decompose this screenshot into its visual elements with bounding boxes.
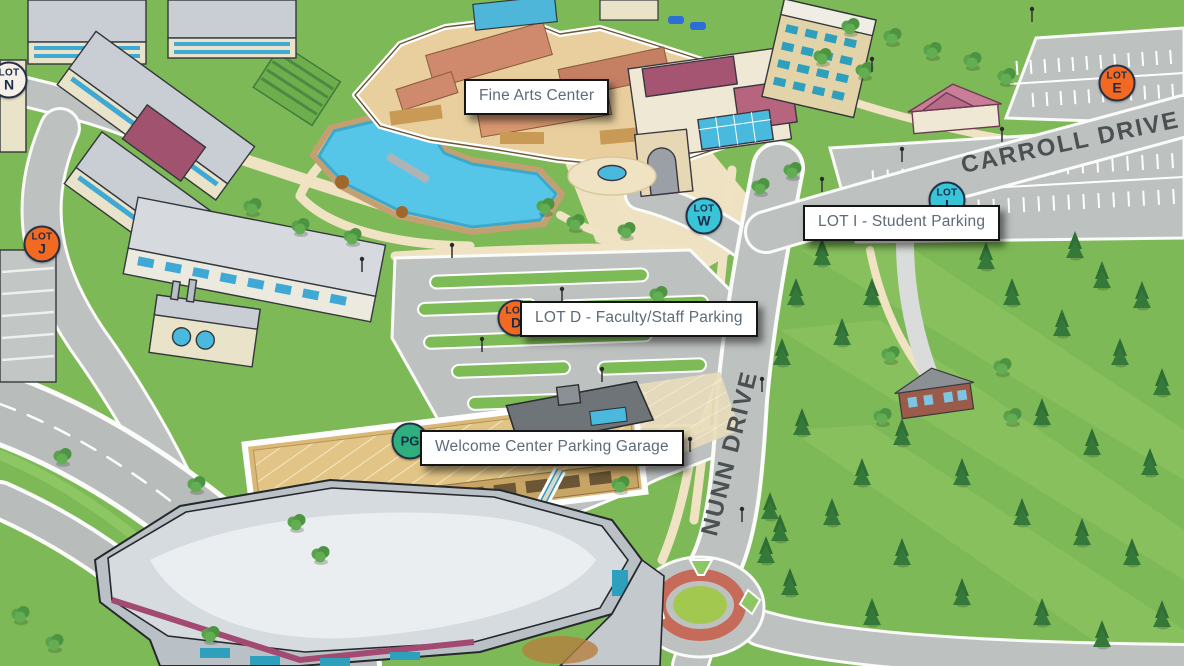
label-lot-d-faculty-staff-parking[interactable]: LOT D - Faculty/Staff Parking <box>520 301 758 337</box>
label-fine-arts-center[interactable]: Fine Arts Center <box>464 79 609 115</box>
campus-map[interactable]: CARROLL DRIVE NUNN DRIVE LOTNLOTJLOTELOT… <box>0 0 1184 666</box>
marker-lot-e[interactable]: LOTE <box>1099 65 1136 102</box>
label-welcome-center-parking-garage[interactable]: Welcome Center Parking Garage <box>420 430 684 466</box>
dirt-patch <box>522 636 598 664</box>
marker-lot-j[interactable]: LOTJ <box>24 226 61 263</box>
label-lot-i-student-parking[interactable]: LOT I - Student Parking <box>803 205 1000 241</box>
marker-lot-w[interactable]: LOTW <box>686 198 723 235</box>
west-parking-structure <box>0 250 56 382</box>
